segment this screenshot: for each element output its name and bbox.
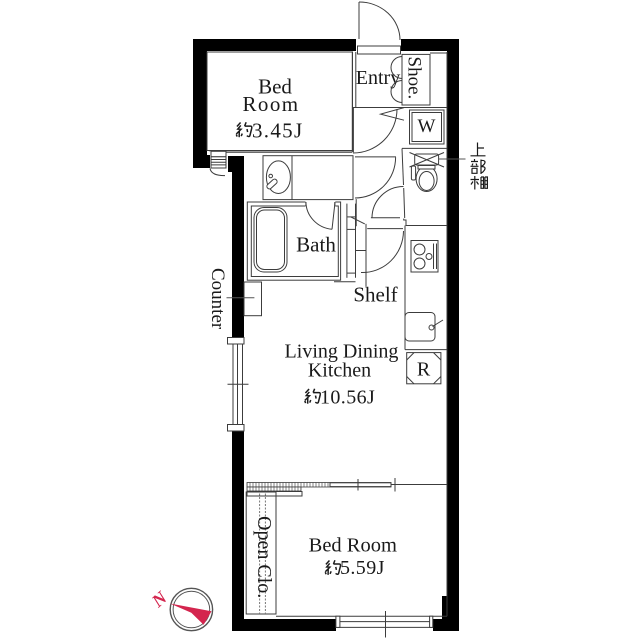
svg-text:R: R: [417, 359, 431, 381]
svg-text:Counter: Counter: [207, 268, 228, 330]
svg-text:Shoe.: Shoe.: [404, 57, 425, 100]
svg-text:Room: Room: [243, 92, 300, 116]
svg-text:3.45J: 3.45J: [252, 119, 303, 143]
svg-text:Shelf: Shelf: [353, 282, 397, 306]
svg-text:W: W: [418, 116, 436, 137]
svg-text:Open Clo.: Open Clo.: [253, 516, 275, 598]
svg-text:Entry: Entry: [356, 67, 400, 89]
svg-text:Bed Room: Bed Room: [309, 535, 397, 557]
svg-text:Kitchen: Kitchen: [308, 360, 371, 382]
svg-text:Bath: Bath: [296, 233, 336, 257]
svg-text:10.56J: 10.56J: [320, 387, 375, 409]
svg-text:5.59J: 5.59J: [340, 557, 385, 579]
